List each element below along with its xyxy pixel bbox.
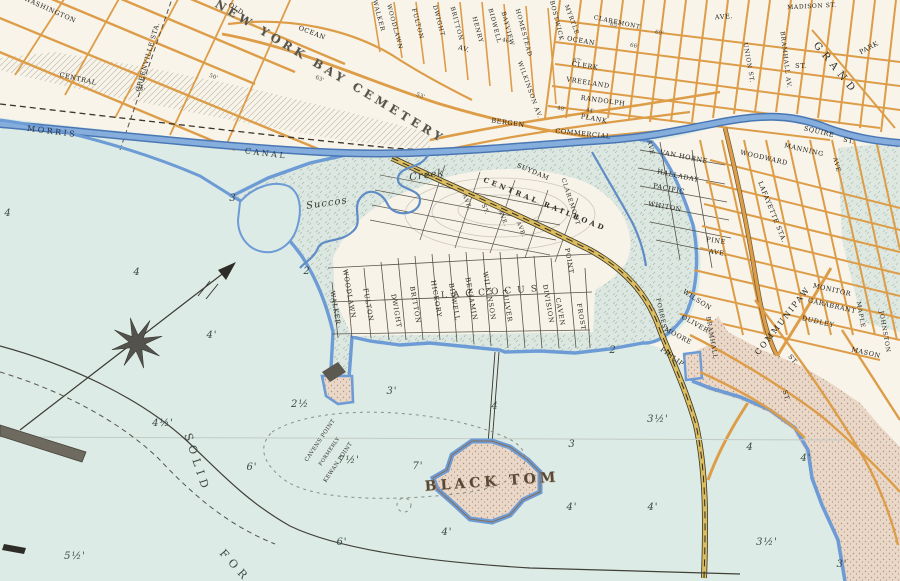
- map-label: BLACK TOM: [424, 470, 559, 493]
- map-label: 69': [654, 30, 663, 37]
- map-label: 4': [647, 503, 658, 513]
- map-label: ST.: [781, 390, 790, 403]
- map-label: 3½': [647, 415, 669, 425]
- map-label: WOODLAWN: [341, 269, 356, 319]
- map-label: OCEAN: [298, 25, 327, 41]
- map-label: OCEAN: [566, 35, 595, 46]
- vintage-harbor-map: BLACK TOMLACCOCUSCAVENS POINTFORMERLYKEW…: [0, 0, 900, 581]
- map-label: 6': [246, 463, 257, 473]
- map-label: 66': [629, 43, 638, 50]
- map-label: COMMERCIAL: [555, 128, 611, 140]
- map-label: BRAMHALL AV.: [779, 31, 792, 89]
- map-label: WOODWARD: [740, 149, 789, 166]
- map-label: 4: [746, 443, 753, 453]
- map-label: 4: [4, 209, 11, 219]
- map-label: AVE.: [715, 13, 734, 21]
- map-label: PINE: [706, 236, 727, 246]
- map-label: 2½: [291, 400, 309, 410]
- map-label: ST.: [479, 204, 488, 216]
- map-label: 4½': [152, 419, 174, 429]
- map-label: BRAMHALL: [704, 316, 717, 360]
- map-label: AV.: [457, 44, 470, 53]
- map-label: ST.: [795, 63, 807, 70]
- map-label: 5½': [64, 552, 86, 562]
- map-label: GARABRANT: [807, 297, 856, 314]
- map-label: PHILIP: [659, 346, 685, 367]
- map-label: ST.: [787, 353, 800, 366]
- map-label: FULTON: [362, 288, 374, 323]
- map-label: ST.: [843, 137, 856, 146]
- map-label: SOLID: [182, 432, 212, 494]
- map-label: MORRIS: [26, 125, 77, 139]
- map-label: 4': [566, 503, 577, 513]
- map-label: 4: [491, 402, 498, 412]
- map-label: 3': [386, 387, 397, 397]
- map-label: 2: [303, 267, 310, 277]
- map-label: 7½': [338, 456, 360, 466]
- map-label: WALKER: [371, 0, 385, 32]
- map-label: FOR: [218, 547, 253, 581]
- map-label: POINT: [564, 247, 575, 274]
- map-label: MADISON ST.: [787, 3, 837, 12]
- map-label: DUDLEY: [801, 315, 834, 329]
- map-label: WHITON: [648, 201, 682, 213]
- map-label: AVE.: [460, 194, 471, 211]
- map-label: 45': [135, 86, 145, 95]
- map-label: HENRY: [471, 16, 484, 44]
- map-label: RANDOLPH: [580, 95, 625, 108]
- map-label: AVE: [645, 140, 654, 156]
- map-label: VAN HORNE: [660, 149, 709, 165]
- map-label: BERGEN: [491, 117, 525, 128]
- map-label: WASHINGTON: [23, 0, 77, 24]
- map-label: SUYDAM: [516, 162, 550, 181]
- map-label: 3½': [756, 538, 778, 548]
- map-label: WILSON: [682, 288, 713, 311]
- map-label: FULTON: [410, 8, 424, 40]
- map-label: HOMESTEAD: [514, 8, 533, 57]
- map-label: 4': [206, 331, 217, 341]
- map-label: DIVISION: [541, 284, 554, 324]
- map-label: JOHNSTON: [877, 311, 890, 354]
- map-label: CENTRAL: [59, 72, 97, 87]
- map-label: 4': [441, 528, 452, 538]
- map-label: WOODLAWN: [385, 4, 403, 51]
- map-label: NEW YORK BAY CEMETERY: [213, 0, 447, 146]
- map-label: 50': [208, 74, 218, 82]
- map-label: 46': [501, 38, 511, 46]
- map-label: VREELAND: [566, 76, 610, 89]
- map-label: 7': [412, 462, 423, 472]
- map-label: 3': [836, 560, 847, 570]
- map-label: MANNING: [784, 142, 825, 157]
- map-label: BRITTON: [449, 6, 464, 42]
- map-label: 2: [609, 346, 616, 356]
- map-label: MASON: [851, 346, 882, 359]
- map-label: Creek: [409, 169, 445, 184]
- map-label: DWIGHT: [431, 5, 445, 38]
- map-label: MAPLE: [855, 301, 866, 329]
- map-label: 63': [314, 76, 324, 85]
- map-label: 3: [229, 194, 236, 204]
- map-label: CANAL: [244, 147, 287, 160]
- map-label: LAFAYETTE STA.: [757, 180, 788, 243]
- map-label: MONITOR: [812, 282, 851, 297]
- map-label: 53': [415, 93, 425, 101]
- map-label: HALLADAY: [657, 168, 700, 183]
- map-label: WILKINSON AV.: [516, 61, 542, 120]
- map-label: WALKER: [329, 290, 341, 325]
- map-label: AVE.: [514, 221, 525, 238]
- map-label: BIDWELL: [447, 283, 460, 322]
- map-label: UNION ST.: [741, 42, 754, 84]
- map-label: GREENVILLE STA.: [135, 21, 161, 92]
- map-label: AVE.: [496, 210, 507, 227]
- map-label: GRAND: [811, 41, 859, 97]
- map-label: PLANK: [580, 113, 608, 125]
- map-label: 4: [133, 268, 140, 278]
- map-label: CAVEN: [554, 297, 565, 326]
- map-label: 3: [568, 440, 575, 450]
- map-label: SQUIRE: [803, 125, 835, 138]
- map-label: AVE.: [708, 248, 727, 257]
- map-label: PARK: [858, 40, 879, 55]
- map-label: MYRTLE: [563, 4, 579, 36]
- map-label: MOORE: [663, 326, 692, 346]
- map-label: 65': [609, 22, 618, 29]
- map-label: AVE: [831, 157, 841, 173]
- map-label: 4': [800, 454, 811, 464]
- map-label: Succos: [306, 196, 349, 212]
- map-label: 6': [336, 538, 347, 548]
- map-label: PACIFIC: [653, 183, 686, 196]
- map-label: BRITTON: [409, 286, 422, 324]
- map-label: DWIGHT: [390, 293, 402, 328]
- map-label: FROST: [575, 303, 586, 331]
- map-label: BOSTWICK: [548, 0, 564, 42]
- map-labels: BLACK TOMLACCOCUSCAVENS POINTFORMERLYKEW…: [0, 0, 900, 581]
- map-label: 48': [556, 107, 565, 114]
